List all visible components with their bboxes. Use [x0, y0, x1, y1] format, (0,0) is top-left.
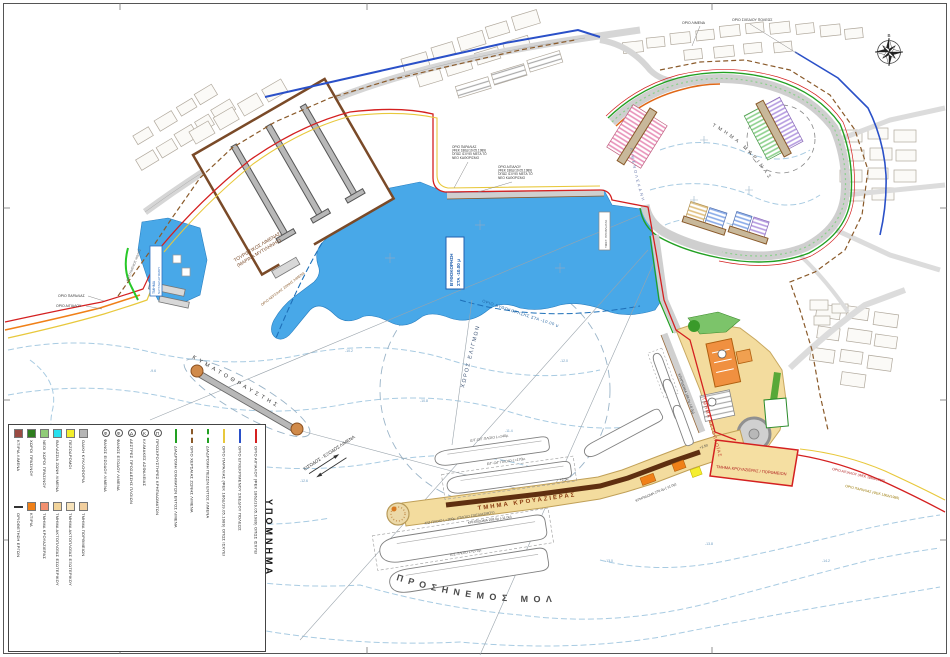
legend-symbol-icon: Κ [141, 429, 149, 437]
legend-entry: ΔΙΑΔΡΟΜΗ ΟΧΗΜΑΤΩΝ ΕΝΤΟΣ ΛΙΜΕΝΑ [169, 429, 183, 528]
legend-swatch-icon [40, 429, 49, 438]
legend-entry: ΟΡΙΟ ΧΕΡΣΑΙΑΣ ΖΩΝΗΣ ΛΙΜΕΝΑ [185, 429, 199, 513]
legend-entry: ΟΔΙΚΗ ΚΥΚΛΟΦΟΡΙΑ [78, 429, 89, 483]
sounding: -13.8 [705, 542, 713, 546]
legend-swatch-icon [27, 429, 36, 438]
city-plan-label: ΟΡΙΟ ΣΧΕΔΙΟΥ ΠΟΛΕΩΣ [732, 18, 773, 22]
legend-left-column: ΚΤΙΡΙΑ ΛΙΜΕΝΑΧΩΡΟΙ ΠΡΑΣΙΝΟΥΝΕΟΙ ΧΩΡΟΙ ΠΡ… [13, 429, 95, 647]
legend: ΚΤΙΡΙΑ ΛΙΜΕΝΑΧΩΡΟΙ ΠΡΑΣΙΝΟΥΝΕΟΙ ΧΩΡΟΙ ΠΡ… [8, 424, 266, 652]
legend-symbols-group: ΦΦΑΝΟΣ ΕΙΣΟΔΟΥ ΛΙΜΕΝΑΦΦΑΝΟΣ ΕΞΟΔΟΥ ΛΙΜΕΝ… [100, 429, 164, 647]
dredge-label-line2: ΣΤΑ -10.00 μ [456, 259, 461, 286]
legend-entry: ΔΙΑΔΡΟΜΗ ΠΕΖΩΝ ΕΝΤΟΣ ΛΙΜΕΝΑ [201, 429, 215, 518]
legend-entry-label: ΦΑΝΟΣ ΕΙΣΟΔΟΥ ΛΙΜΕΝΑ [103, 439, 108, 492]
legend-line-style-icon [223, 429, 225, 443]
legend-swatch-icon [66, 429, 75, 438]
legend-entry-label: ΤΜΗΜΑ ΑΚΤΟΠΛΟΪΑΣ ΕΣΩΤΕΡΙΚΟΥ [55, 513, 60, 586]
legend-entry-label: ΠΡΟΣΚΡΟΥΣΤΗΡΕΣ ΚΡΗΠΙΔΩΜΑΤΩΝ [155, 439, 160, 515]
legend-entry-label: ΤΜΗΜΑ ΑΚΤΟΠΛΟΪΑΣ ΕΞΩΤΕΡΙΚΟΥ [68, 513, 73, 586]
legend-entry: ΟΡΙΟ ΑΙΓΙΑΛΟΥ (ΦΕΚ 186Δ/19.05.1989) ΟΠΩΣ… [249, 429, 263, 555]
sounding: -9.6 [150, 369, 156, 373]
legend-line-style-icon [191, 429, 193, 443]
sounding: -12.0 [560, 359, 568, 363]
legend-symbol-icon: Δ [128, 429, 136, 437]
legend-swatch-icon [53, 502, 62, 511]
legend-entry-label: ΚΤΙΡΙΑ ΛΙΜΕΝΑ [16, 440, 21, 471]
legend-symbol-icon: Φ [102, 429, 110, 437]
shore-paralia-label: ΟΡΙΟ ΠΑΡΑΛΙΑΣ [58, 294, 86, 298]
legend-entry-label: ΝΕΟΙ ΧΩΡΟΙ ΠΡΑΣΙΝΟΥ [42, 440, 47, 488]
sounding: -12.6 [300, 479, 308, 483]
legend-entry-label: ΚΛΙΜΑΚΕΣ ΑΣΦΑΛΕΙΑΣ [142, 439, 147, 486]
legend-entry-label: ΟΡΙΟΘΕΤΗΣΗ ΕΡΓΩΝ [16, 513, 21, 557]
legend-entry-label: ΔΙΑΔΡΟΜΗ ΟΧΗΜΑΤΩΝ ΕΝΤΟΣ ΛΙΜΕΝΑ [174, 446, 179, 528]
paralia-note-line: ΝΕΟ ΚΑΘΟΡΙΣΜΟ [452, 156, 480, 160]
legend-symbol-icon: Φ [115, 429, 123, 437]
legend-entry: ΟΡΙΟΘΕΤΗΣΗ ΕΡΓΩΝ [13, 502, 24, 557]
legend-entry-label: ΧΩΡΟΙ ΠΡΑΣΙΝΟΥ [29, 440, 34, 477]
legend-entry: ΦΦΑΝΟΣ ΕΙΣΟΔΟΥ ΛΙΜΕΝΑ [100, 429, 111, 492]
legend-entry-label: ΟΡΙΟ ΕΓΚΕΚΡΙΜΕΝΟΥ ΣΧΕΔΙΟΥ ΠΟΛΕΩΣ [238, 446, 243, 531]
legend-entry: ΚΚΛΙΜΑΚΕΣ ΑΣΦΑΛΕΙΑΣ [139, 429, 150, 486]
compass-north-label: Β [887, 33, 890, 38]
legend-line-style-icon [239, 429, 241, 443]
legend-swatch-icon [79, 502, 88, 511]
legend-swatch-icon [79, 429, 88, 438]
port-master-plan-page: Ε/Γ-Ο/Γ ΠΛΟΙΟ L=170μ. Ε/Γ-Ο/Γ ΠΛΟΙΟ L=14… [0, 0, 950, 657]
legend-symbol-icon: Π [154, 429, 162, 437]
legend-entry: ΧΩΡΟΙ ΠΡΑΣΙΝΟΥ [26, 429, 37, 477]
sounding: -10.2 [345, 349, 353, 353]
legend-entry-label: ΟΡΙΟ ΠΑΡΑΛΙΑΣ (ΦΕΚ 186Δ/19.05.1989) ΟΠΩΣ… [222, 446, 227, 556]
port-limit-label: ΟΡΙΟ ΛΙΜΕΝΑ [682, 21, 706, 25]
legend-entry: ΠΠΡΟΣΚΡΟΥΣΤΗΡΕΣ ΚΡΗΠΙΔΩΜΑΤΩΝ [152, 429, 163, 515]
legend-entry-label: ΟΔΙΚΗ ΚΥΚΛΟΦΟΡΙΑ [81, 440, 86, 483]
sounding: -14.2 [822, 559, 830, 563]
legend-entry: ΤΜΗΜΑ ΠΟΡΘΜΕΙΩΝ [78, 502, 89, 556]
legend-entry-label: ΘΑΛΑΣΣΙΑ ΖΩΝΗ ΛΙΜΕΝΑ [55, 440, 60, 492]
legend-entry: ΦΦΑΝΟΣ ΕΞΟΔΟΥ ΛΙΜΕΝΑ [113, 429, 124, 491]
sounding: -11.4 [505, 429, 513, 433]
legend-entry: ΤΜΗΜΑ ΑΚΤΟΠΛΟΪΑΣ ΕΞΩΤΕΡΙΚΟΥ [65, 502, 76, 586]
sounding: -13.0 [605, 559, 613, 563]
legend-entry: ΚΤΙΡΙΑ ΛΙΜΕΝΑ [13, 429, 24, 471]
legend-entry-label: ΤΜΗΜΑ ΚΡΟΥΑΖΙΕΡΑΣ [42, 513, 47, 559]
dredge-label-line1: ΒΥΘΟΚΟΡΗΣΗ [449, 253, 454, 286]
legend-zones-group: ΚΤΙΡΙΑ ΛΙΜΕΝΑΧΩΡΟΙ ΠΡΑΣΙΝΟΥΝΕΟΙ ΧΩΡΟΙ ΠΡ… [13, 429, 95, 492]
legend-title: ΥΠΟΜΝΗΜΑ [264, 499, 274, 577]
legend-swatch-icon [66, 502, 75, 511]
aigialos-note-line: ΝΕΟ ΚΑΘΟΡΙΣΜΟ [498, 176, 526, 180]
legend-lines-group: ΔΙΑΔΡΟΜΗ ΟΧΗΜΑΤΩΝ ΕΝΤΟΣ ΛΙΜΕΝΑΟΡΙΟ ΧΕΡΣΑ… [169, 429, 261, 647]
legend-entry-label: ΚΤΙΡΙΑ [29, 513, 34, 527]
nautical-label-line1: ΤΜΗΜΑ [152, 280, 156, 294]
legend-entry-label: ΟΡΙΟ ΧΕΡΣΑΙΑΣ ΖΩΝΗΣ ΛΙΜΕΝΑ [190, 446, 195, 513]
legend-entry: ΤΜΗΜΑ ΚΡΟΥΑΖΙΕΡΑΣ [39, 502, 50, 559]
legend-entry: ΝΕΟΙ ΧΩΡΟΙ ΠΡΑΣΙΝΟΥ [39, 429, 50, 488]
existing-jetty-label: ΥΦΙΣΤ. ΠΡΟΒΛΗΤΑΣ [604, 220, 608, 248]
nautical-label-line2: ΝΑΥΤΑΘΛΗΤΙΣΜΟΥ [157, 267, 161, 294]
sounding: -10.8 [420, 399, 428, 403]
legend-entry: ΟΡΙΟ ΕΓΚΕΚΡΙΜΕΝΟΥ ΣΧΕΔΙΟΥ ΠΟΛΕΩΣ [233, 429, 247, 531]
legend-entry: ΠΕΖΟΔΡΟΜΟΙ [65, 429, 76, 469]
legend-entry-label: ΠΕΖΟΔΡΟΜΟΙ [68, 440, 73, 469]
legend-line-style-icon [207, 429, 209, 443]
legend-line-icon [14, 506, 23, 508]
legend-body: ΚΤΙΡΙΑ ΛΙΜΕΝΑΧΩΡΟΙ ΠΡΑΣΙΝΟΥΝΕΟΙ ΧΩΡΟΙ ΠΡ… [13, 429, 261, 647]
legend-swatch-icon [14, 429, 23, 438]
legend-entry: ΘΑΛΑΣΣΙΑ ΖΩΝΗ ΛΙΜΕΝΑ [52, 429, 63, 492]
legend-entry: ΚΤΙΡΙΑ [26, 502, 37, 527]
legend-line-style-icon [175, 429, 177, 443]
legend-swatch-icon [53, 429, 62, 438]
legend-entry-label: ΤΜΗΜΑ ΠΟΡΘΜΕΙΩΝ [81, 513, 86, 556]
nautical-sports-label-box: ΤΜΗΜΑ ΝΑΥΤΑΘΛΗΤΙΣΜΟΥ [150, 246, 162, 296]
dredge-label-box: ΒΥΘΟΚΟΡΗΣΗ ΣΤΑ -10.00 μ [446, 237, 464, 289]
legend-sections-group: ΟΡΙΟΘΕΤΗΣΗ ΕΡΓΩΝΚΤΙΡΙΑΤΜΗΜΑ ΚΡΟΥΑΖΙΕΡΑΣΤ… [13, 502, 95, 586]
legend-entry-label: ΟΡΙΟ ΑΙΓΙΑΛΟΥ (ΦΕΚ 186Δ/19.05.1989) ΟΠΩΣ… [254, 446, 259, 555]
shore-aigialos-label: ΟΡΙΟ ΑΙΓΙΑΛΟΥ [56, 304, 82, 308]
legend-entry: ΟΡΙΟ ΠΑΡΑΛΙΑΣ (ΦΕΚ 186Δ/19.05.1989) ΟΠΩΣ… [217, 429, 231, 556]
legend-entry-label: ΔΙΑΔΡΟΜΗ ΠΕΖΩΝ ΕΝΤΟΣ ΛΙΜΕΝΑ [206, 446, 211, 518]
legend-line-style-icon [255, 429, 257, 443]
legend-entry-label: ΔΕΣΤΡΕΣ ΠΡΟΣΔΕΣΗΣ ΠΛΟΙΩΝ [129, 439, 134, 504]
legend-swatch-icon [40, 502, 49, 511]
legend-entry-label: ΦΑΝΟΣ ΕΞΟΔΟΥ ΛΙΜΕΝΑ [116, 439, 121, 491]
legend-entry: ΤΜΗΜΑ ΑΚΤΟΠΛΟΪΑΣ ΕΣΩΤΕΡΙΚΟΥ [52, 502, 63, 586]
legend-swatch-icon [27, 502, 36, 511]
legend-entry: ΔΔΕΣΤΡΕΣ ΠΡΟΣΔΕΣΗΣ ΠΛΟΙΩΝ [126, 429, 137, 504]
